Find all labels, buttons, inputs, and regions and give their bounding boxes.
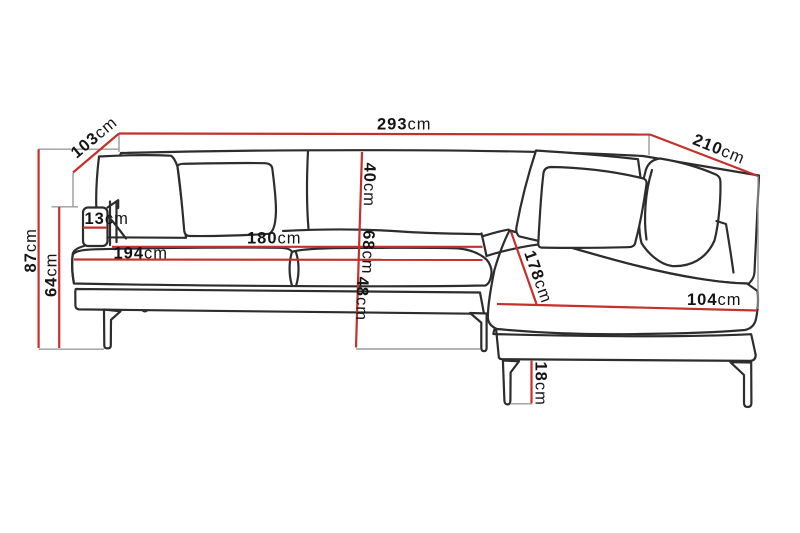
svg-text:293cm: 293cm (377, 116, 432, 134)
svg-text:194cm: 194cm (114, 244, 169, 262)
svg-text:68cm: 68cm (358, 230, 378, 275)
svg-text:40cm: 40cm (360, 162, 379, 207)
svg-text:210cm: 210cm (690, 131, 747, 168)
svg-text:48cm: 48cm (352, 276, 372, 321)
svg-text:87cm: 87cm (22, 228, 40, 272)
svg-text:64cm: 64cm (43, 253, 61, 297)
svg-text:18cm: 18cm (532, 362, 550, 406)
svg-text:180cm: 180cm (247, 230, 302, 248)
svg-text:104cm: 104cm (687, 291, 742, 309)
svg-text:13cm: 13cm (85, 210, 129, 228)
